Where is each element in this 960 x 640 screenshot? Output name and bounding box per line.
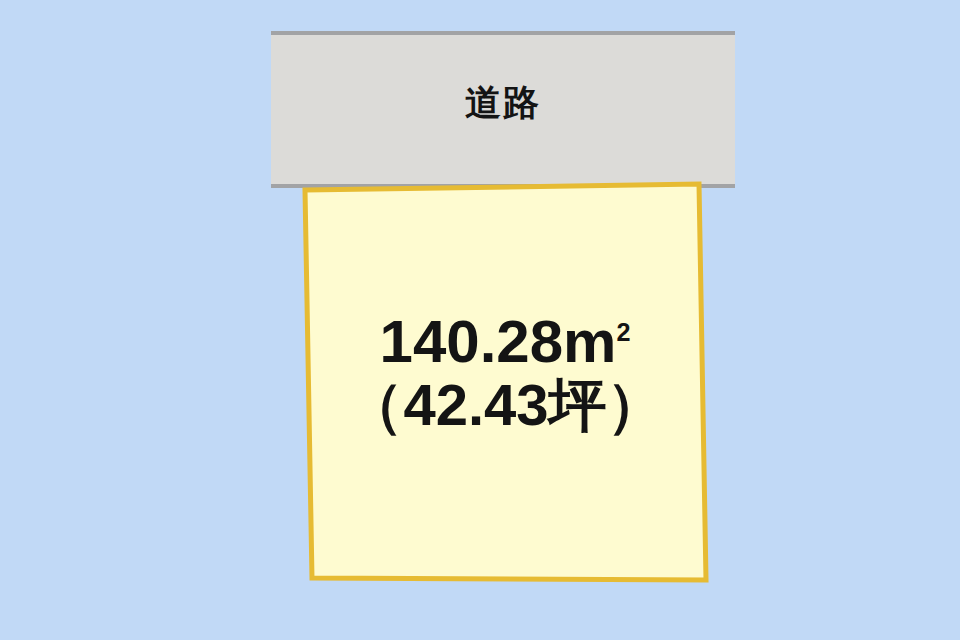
- land-plot-diagram: 道路 140.28m2 （42.43坪）: [0, 0, 960, 640]
- area-unit-base: m: [563, 308, 616, 375]
- area-unit: m2: [563, 308, 630, 375]
- plot-area-text: 140.28m2 （42.43坪）: [295, 310, 715, 435]
- area-tsubo-line: （42.43坪）: [295, 374, 715, 435]
- area-unit-exponent: 2: [616, 318, 630, 346]
- area-value: 140.28: [380, 308, 564, 375]
- area-sqm-line: 140.28m2: [295, 310, 715, 374]
